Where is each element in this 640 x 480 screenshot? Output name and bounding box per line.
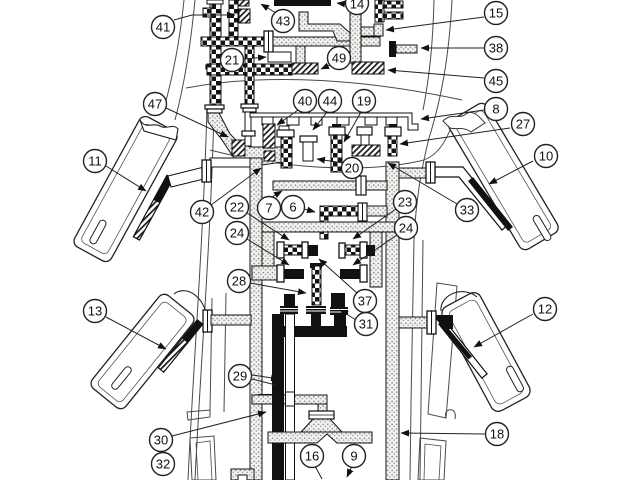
svg-text:8: 8 [492,102,499,117]
svg-text:27: 27 [516,117,530,132]
svg-text:49: 49 [332,51,346,66]
svg-text:47: 47 [148,97,162,112]
svg-text:45: 45 [489,74,503,89]
svg-text:23: 23 [398,195,412,210]
svg-text:22: 22 [230,200,244,215]
svg-text:38: 38 [489,41,503,56]
svg-text:20: 20 [345,161,359,176]
svg-text:9: 9 [350,449,357,464]
svg-text:32: 32 [156,457,170,472]
svg-text:28: 28 [232,274,246,289]
svg-text:19: 19 [357,94,371,109]
svg-text:29: 29 [233,369,247,384]
svg-text:37: 37 [358,294,372,309]
svg-text:10: 10 [539,149,553,164]
svg-text:15: 15 [489,6,503,21]
svg-text:13: 13 [88,304,102,319]
svg-text:21: 21 [225,53,239,68]
svg-text:7: 7 [265,201,272,216]
svg-text:42: 42 [195,205,209,220]
svg-text:11: 11 [88,154,102,169]
svg-text:14: 14 [350,0,364,12]
svg-text:30: 30 [154,433,168,448]
svg-text:24: 24 [230,226,244,241]
svg-text:6: 6 [289,200,296,215]
svg-text:43: 43 [276,14,290,29]
svg-text:41: 41 [156,20,170,35]
svg-text:40: 40 [298,94,312,109]
svg-text:18: 18 [490,427,504,442]
svg-text:31: 31 [359,317,373,332]
svg-text:12: 12 [538,302,552,317]
svg-text:44: 44 [323,94,337,109]
svg-text:33: 33 [460,203,474,218]
svg-text:24: 24 [399,221,413,236]
svg-text:16: 16 [305,449,319,464]
